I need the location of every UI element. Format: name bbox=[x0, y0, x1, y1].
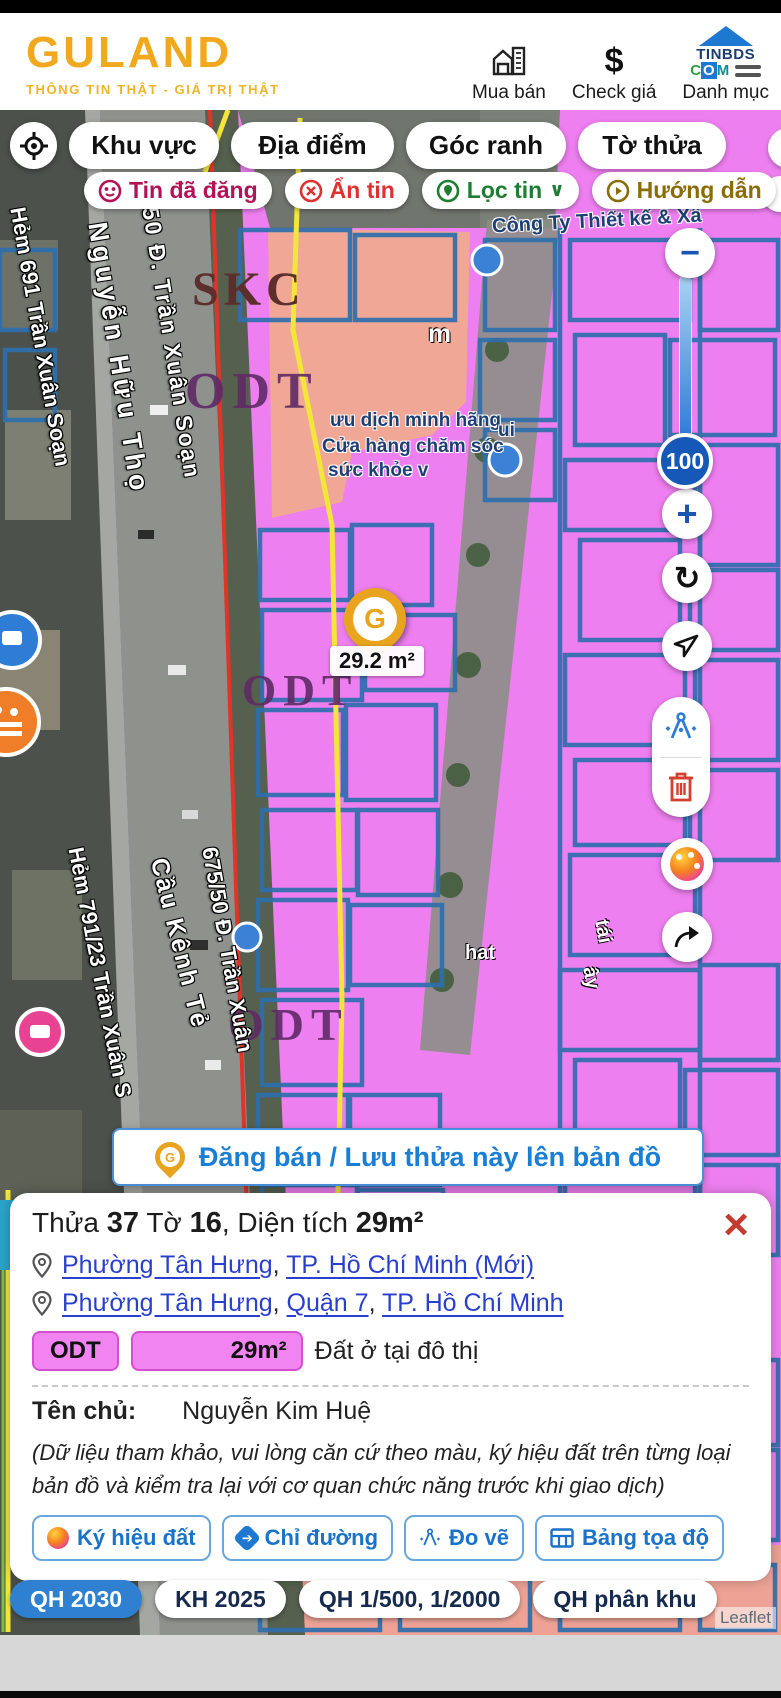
divider bbox=[32, 1385, 749, 1387]
directions-button[interactable]: ➔ Chỉ đường bbox=[222, 1515, 393, 1561]
owner-row: Tên chủ: Nguyễn Kim Huệ bbox=[32, 1397, 749, 1426]
banner-label: Đăng bán / Lưu thửa này lên bản đồ bbox=[199, 1142, 661, 1173]
parcel-area-label: 29.2 m² bbox=[330, 646, 424, 676]
hamburger-icon bbox=[735, 65, 761, 77]
guland-pin-g: G bbox=[364, 603, 386, 635]
pin-circle-icon bbox=[436, 179, 460, 203]
location-link[interactable]: TP. Hồ Chí Minh (Mới) bbox=[286, 1251, 534, 1279]
map-attribution[interactable]: Leaflet bbox=[715, 1607, 776, 1629]
parcel-title: Thửa 37 Tờ 16, Diện tích 29m² × bbox=[32, 1207, 749, 1242]
layer-switcher: QH 2030 KH 2025 QH 1/500, 1/2000 QH phân… bbox=[10, 1580, 717, 1618]
filter-row-primary: Khu vực Địa điểm Góc ranh Tờ thửa bbox=[10, 122, 726, 169]
location-link[interactable]: Quận 7 bbox=[287, 1289, 369, 1317]
button-label: Ký hiệu đất bbox=[77, 1525, 196, 1551]
status-bar bbox=[0, 0, 781, 13]
app-header: GULAND THÔNG TIN THẬT - GIÁ TRỊ THẬT Mua… bbox=[0, 13, 781, 110]
filter-label: Ẩn tin bbox=[330, 177, 395, 204]
land-code-badge: ODT bbox=[32, 1331, 119, 1371]
filter-tin-da-dang[interactable]: Tin đã đăng bbox=[84, 172, 272, 209]
plus-icon: + bbox=[676, 493, 697, 535]
filter-an-tin[interactable]: Ẩn tin bbox=[285, 172, 409, 209]
map-style-button[interactable] bbox=[661, 838, 713, 890]
button-label: Chỉ đường bbox=[265, 1525, 378, 1551]
map-pin-icon bbox=[32, 1291, 52, 1316]
locate-button[interactable] bbox=[10, 122, 57, 169]
land-type-name: Đất ở tại đô thị bbox=[315, 1337, 479, 1366]
table-icon bbox=[550, 1528, 574, 1548]
owner-label: Tên chủ: bbox=[32, 1397, 136, 1426]
location-row-new: Phường Tân Hưng, TP. Hồ Chí Minh (Mới) bbox=[32, 1251, 749, 1280]
pin-icon: G bbox=[149, 1136, 191, 1178]
map-tools-group bbox=[652, 697, 710, 817]
location-link[interactable]: Phường Tân Hưng bbox=[62, 1251, 273, 1279]
filter-label: Lọc tin bbox=[467, 177, 542, 204]
nav-label: Mua bán bbox=[472, 82, 546, 104]
guland-logo-text: GULAND bbox=[26, 31, 280, 75]
nav-label: Check giá bbox=[572, 82, 657, 104]
nav-mua-ban[interactable]: Mua bán bbox=[472, 42, 546, 104]
palette-icon bbox=[47, 1527, 69, 1549]
tinbds-text: TINBDS bbox=[696, 47, 755, 62]
compass-measure-icon bbox=[664, 710, 698, 744]
filter-loc-tin[interactable]: Lọc tin ∨ bbox=[422, 172, 579, 209]
delete-tool-button[interactable] bbox=[652, 758, 710, 818]
zoom-slider[interactable] bbox=[680, 276, 691, 438]
guland-logo[interactable]: GULAND THÔNG TIN THẬT - GIÁ TRỊ THẬT bbox=[26, 31, 280, 97]
nav-label: Danh mục bbox=[682, 82, 769, 104]
tinbds-com-text: COM bbox=[690, 63, 729, 78]
navigation-arrow-icon bbox=[673, 632, 701, 660]
refresh-button[interactable]: ↻ bbox=[662, 553, 712, 603]
location-link[interactable]: TP. Hồ Chí Minh bbox=[382, 1289, 564, 1317]
map-pin-icon bbox=[32, 1253, 52, 1278]
dollar-icon: $ bbox=[605, 44, 624, 78]
close-icon[interactable]: × bbox=[723, 1207, 749, 1242]
measure-button[interactable]: Đo vẽ bbox=[404, 1515, 524, 1561]
filter-to-thua[interactable]: Tờ thửa bbox=[578, 122, 726, 169]
filter-khu-vuc[interactable]: Khu vực bbox=[69, 122, 219, 169]
guland-tagline: THÔNG TIN THẬT - GIÁ TRỊ THẬT bbox=[26, 82, 280, 97]
buildings-icon bbox=[490, 42, 528, 78]
trash-icon bbox=[666, 771, 696, 803]
my-location-button[interactable] bbox=[662, 621, 712, 671]
minus-icon: − bbox=[680, 234, 700, 273]
parcel-info-panel: Thửa 37 Tờ 16, Diện tích 29m² × Phường T… bbox=[10, 1193, 771, 1581]
posts-icon bbox=[98, 179, 122, 203]
filter-huong-dan[interactable]: Hướng dẫn bbox=[592, 172, 776, 209]
filter-dia-diem[interactable]: Địa điểm bbox=[231, 122, 394, 169]
button-label: Đo vẽ bbox=[449, 1525, 509, 1551]
location-row-old: Phường Tân Hưng, Quận 7, TP. Hồ Chí Minh bbox=[32, 1289, 749, 1318]
zoom-out-button[interactable]: − bbox=[665, 228, 715, 278]
header-nav: Mua bán $ Check giá TINBDS COM Danh mục bbox=[472, 13, 769, 110]
filter-label: Hướng dẫn bbox=[637, 177, 762, 204]
nav-danh-muc[interactable]: TINBDS COM Danh mục bbox=[682, 26, 769, 104]
layer-qh500[interactable]: QH 1/500, 1/2000 bbox=[299, 1580, 521, 1618]
land-area-badge: 29m² bbox=[131, 1331, 303, 1371]
compass-measure-icon bbox=[419, 1527, 441, 1549]
location-link[interactable]: Phường Tân Hưng bbox=[62, 1289, 273, 1317]
land-type-row: ODT 29m² Đất ở tại đô thị bbox=[32, 1331, 749, 1371]
nav-check-gia[interactable]: $ Check giá bbox=[572, 44, 657, 104]
directions-icon: ➔ bbox=[232, 1524, 260, 1552]
panel-actions: Ký hiệu đất ➔ Chỉ đường Đo vẽ bbox=[32, 1515, 749, 1561]
refresh-icon: ↻ bbox=[674, 559, 701, 597]
parcel-title-text: Thửa 37 Tờ 16, Diện tích 29m² bbox=[32, 1207, 423, 1240]
legend-button[interactable]: Ký hiệu đất bbox=[32, 1515, 211, 1561]
chevron-down-icon: ∨ bbox=[549, 179, 564, 202]
button-label: Bảng tọa độ bbox=[582, 1525, 709, 1551]
bottom-black-bar bbox=[0, 1691, 781, 1698]
measure-tool-button[interactable] bbox=[652, 697, 710, 757]
share-button[interactable] bbox=[662, 912, 712, 962]
crosshair-icon bbox=[20, 132, 48, 160]
guide-play-icon bbox=[606, 179, 630, 203]
filter-label: Tin đã đăng bbox=[129, 177, 258, 204]
disclaimer-text: (Dữ liệu tham khảo, vui lòng căn cứ theo… bbox=[32, 1436, 749, 1502]
hide-circle-x-icon bbox=[299, 179, 323, 203]
post-save-banner[interactable]: G Đăng bán / Lưu thửa này lên bản đồ bbox=[112, 1128, 704, 1186]
zoom-level-badge[interactable]: 100 bbox=[657, 433, 713, 489]
tinbds-logo: TINBDS COM bbox=[690, 26, 761, 78]
filter-row-secondary: Tin đã đăng Ẩn tin Lọc tin ∨ Hướng dẫn bbox=[84, 172, 776, 209]
share-arrow-icon bbox=[672, 923, 702, 951]
app-screen: GULAND THÔNG TIN THẬT - GIÁ TRỊ THẬT Mua… bbox=[0, 0, 781, 1698]
layer-qh-phan-khu[interactable]: QH phân khu bbox=[533, 1580, 716, 1618]
filter-goc-ranh[interactable]: Góc ranh bbox=[406, 122, 566, 169]
layer-kh2025[interactable]: KH 2025 bbox=[155, 1580, 286, 1618]
owner-name: Nguyễn Kim Huệ bbox=[182, 1397, 371, 1426]
zoom-in-button[interactable]: + bbox=[662, 489, 712, 539]
palette-icon bbox=[670, 847, 704, 881]
bottom-gray-strip bbox=[0, 1635, 781, 1691]
layer-qh2030[interactable]: QH 2030 bbox=[10, 1580, 142, 1618]
coordinates-table-button[interactable]: Bảng tọa độ bbox=[535, 1515, 724, 1561]
house-roof-icon bbox=[699, 26, 753, 46]
